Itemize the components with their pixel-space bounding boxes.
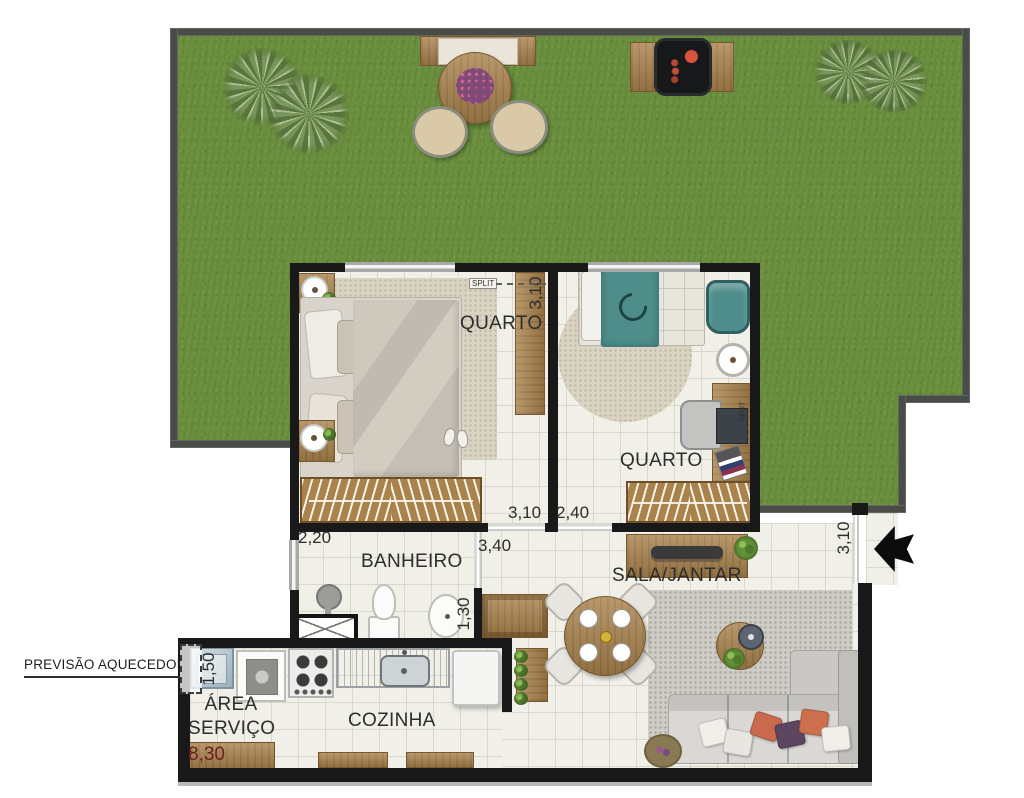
kitchen-mat xyxy=(406,752,474,768)
dim-aquecedor-width: 1,50 xyxy=(199,645,219,693)
wall-kitchen-top xyxy=(178,638,512,648)
wall-sala-right xyxy=(858,583,872,782)
split-label-quarto1: SPLIT xyxy=(469,278,497,289)
sala-label: SALA/JANTAR xyxy=(612,565,742,587)
lamp-dot xyxy=(748,634,754,640)
refrigerator xyxy=(452,650,500,706)
dim-banheiro-width: 2,20 xyxy=(298,528,331,548)
split-dashed-line xyxy=(496,283,546,285)
blanket-motif xyxy=(613,287,652,326)
garden-wall-bottom-right xyxy=(755,505,906,513)
wall-quarto2-right xyxy=(750,263,760,532)
sink-basin xyxy=(380,655,430,687)
area-servico-label-line2: SERVIÇO xyxy=(188,718,274,740)
plate xyxy=(612,643,631,662)
area-servico-label-line1: ÁREA xyxy=(192,694,270,716)
wall-bottom xyxy=(178,768,872,782)
sink-drain xyxy=(401,668,407,674)
kitchen-counter-sink xyxy=(336,648,450,688)
dim-quarto2-width: 2,40 xyxy=(556,503,589,523)
flower-centerpiece xyxy=(456,68,494,104)
floor-plan: QUARTO QUARTO BANHEIRO SALA/JANTAR COZIN… xyxy=(0,0,1024,798)
pouf xyxy=(644,734,682,768)
aquecedor-dashed-box xyxy=(180,644,202,694)
quarto1-wardrobe xyxy=(300,477,482,523)
wall-quartos-divider xyxy=(548,263,558,525)
hall-console xyxy=(482,594,548,638)
small-plant xyxy=(323,428,336,441)
floor-lamp xyxy=(738,624,764,650)
bed-pillow xyxy=(581,271,603,341)
wall-stub-center xyxy=(545,523,558,532)
dim-quarto1-depth: 3,10 xyxy=(526,269,546,317)
faucet-dot xyxy=(445,614,450,619)
quarto2-wardrobe xyxy=(626,481,754,523)
quarto1-window xyxy=(345,262,455,272)
dim-entry-depth: 3,10 xyxy=(834,514,854,562)
split-label-quarto2: SPLIT xyxy=(740,397,747,427)
quarto2-door-threshold xyxy=(558,524,612,531)
plate xyxy=(579,643,598,662)
planter-plant xyxy=(514,692,528,705)
wall-left-upper xyxy=(290,263,299,540)
garden-wall-right xyxy=(962,28,970,403)
bbq-bench xyxy=(630,42,656,92)
side-table-plant xyxy=(723,648,745,669)
quarto2-label: QUARTO xyxy=(620,450,702,472)
dim-banheiro-depth: 1,30 xyxy=(454,590,474,638)
dim-hall-span: 3,40 xyxy=(478,536,511,556)
wall-quarto2-bottom xyxy=(612,523,760,532)
toilet-bowl xyxy=(372,584,396,620)
garden-ottoman xyxy=(490,100,548,154)
planter-plant xyxy=(514,664,528,677)
sofa-pillow-white xyxy=(821,725,851,753)
dining-table xyxy=(564,596,646,676)
cozinha-label: COZINHA xyxy=(348,710,436,732)
garden-wall-left xyxy=(170,28,178,448)
plate xyxy=(612,609,631,628)
bbq-coals xyxy=(662,46,704,88)
single-bed xyxy=(578,266,705,346)
bbq-grill xyxy=(654,38,712,96)
wall-banheiro-right xyxy=(474,588,482,648)
garden-ottoman xyxy=(412,106,468,158)
garden-wall-top xyxy=(170,28,970,36)
round-side-table xyxy=(716,343,750,377)
teal-blanket xyxy=(601,265,659,347)
teal-armchair xyxy=(706,280,750,334)
quarto1-door-threshold xyxy=(488,524,545,531)
entry-frame-stub-top xyxy=(852,503,868,515)
dim-quarto1-width: 3,10 xyxy=(508,503,541,523)
garden-grass-left xyxy=(178,396,290,440)
garden-bush xyxy=(268,74,350,154)
table-centerpiece xyxy=(600,631,612,643)
wall-fridge-nook xyxy=(502,640,512,712)
plate xyxy=(579,609,598,628)
faucet-dot xyxy=(402,650,407,655)
console-plant xyxy=(734,536,758,560)
garden-bush xyxy=(858,50,930,112)
garden-grass-right xyxy=(755,396,898,505)
garden-wall-notch xyxy=(898,395,970,403)
previsao-aquecedor-label: PREVISÃO AQUECEDOR xyxy=(24,657,187,672)
stove xyxy=(288,648,334,698)
bed-blanket xyxy=(353,300,459,477)
tank-basin xyxy=(246,659,278,695)
dim-total-width: 8,30 xyxy=(188,744,225,766)
quarto2-window xyxy=(588,262,700,272)
garden-wall-right-lower xyxy=(898,395,906,513)
wall-bottom-shadow xyxy=(178,782,872,786)
planter-plant xyxy=(514,650,528,663)
planter-plant xyxy=(514,678,528,691)
kitchen-mat xyxy=(318,752,388,768)
banheiro-label: BANHEIRO xyxy=(361,551,463,573)
previsao-leader-line xyxy=(24,676,182,678)
tv xyxy=(651,546,723,559)
garden-wall-bottom-left xyxy=(170,440,298,448)
